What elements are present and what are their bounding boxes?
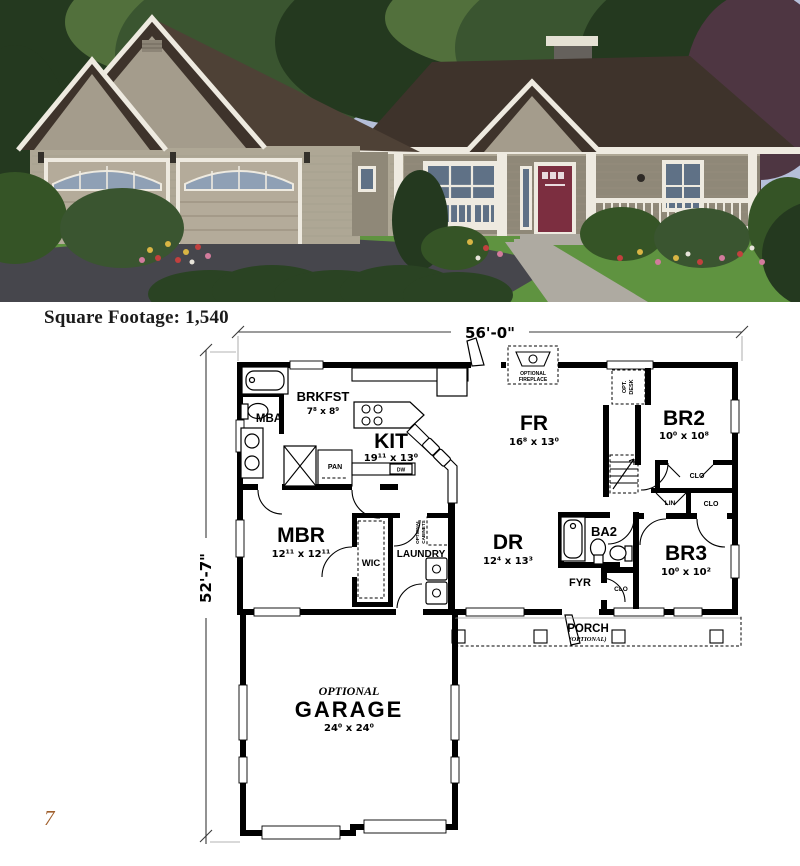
ba2-sink: [591, 539, 606, 557]
room-label-dr: DR: [493, 531, 523, 554]
room-label-mbr: MBR: [277, 524, 325, 547]
room-label-kit: KIT: [374, 430, 408, 453]
garage-door-plan-right: [364, 820, 446, 833]
label-lin: LIN: [665, 500, 676, 507]
porch-note: (OPTIONAL): [569, 636, 606, 643]
square-footage-caption: Square Footage: 1,540: [44, 307, 229, 329]
garage-optional-label: OPTIONAL: [319, 684, 380, 698]
room-label-fyr: FYR: [569, 577, 591, 589]
room-label-br3: BR3: [665, 542, 707, 565]
room-label-fr: FR: [520, 412, 548, 435]
label-clo-br3: CLO: [704, 501, 719, 508]
opt-desk-niche: OPT. DESK: [612, 370, 645, 404]
room-dims-brkfst: 7⁸ x 8⁹: [307, 407, 340, 417]
br3-door-swing: [640, 519, 666, 545]
room-label-laundry: LAUNDRY: [397, 549, 446, 560]
square-footage-label: Square Footage:: [44, 307, 180, 328]
entry-door: [534, 162, 576, 234]
mba-door-swing: [258, 490, 282, 514]
porch-lamp: [637, 174, 645, 182]
kitchen-island: [354, 402, 424, 428]
square-footage-value: 1,540: [185, 307, 229, 328]
cabinets-label-2: CABINETS: [421, 520, 426, 543]
room-label-ba2: BA2: [591, 524, 617, 539]
kitchen-fixtures: DW: [352, 368, 468, 503]
room-dims-kit: 19¹¹ x 13⁰: [364, 453, 418, 464]
room-label-wic: WIC: [362, 558, 381, 569]
laundry-fixtures: [426, 558, 447, 604]
br2-door-swing: [641, 463, 668, 490]
dim-height-text: 52'-7": [197, 553, 215, 603]
garage-door-right: [176, 158, 302, 244]
refrigerator: [437, 368, 467, 396]
porch-plan: PORCH (OPTIONAL): [452, 615, 741, 646]
label-clo-br2: CLO: [690, 473, 705, 480]
ba2-sink-pedestal: [594, 555, 603, 564]
dw-label: DW: [397, 468, 406, 474]
room-dims-garage: 24⁰ x 24⁰: [324, 723, 374, 734]
page-number: 7: [44, 806, 55, 831]
washer: [426, 558, 447, 580]
room-dims-br2: 10⁰ x 10⁸: [659, 431, 709, 442]
room-labels: MBA BRKFST 7⁸ x 8⁹ KIT 19¹¹ x 13⁰ FR 16⁸…: [256, 389, 719, 734]
catalog-page: 56'-0" 52'-7": [0, 0, 800, 866]
house-rendering: [0, 0, 800, 318]
room-dims-br3: 10⁰ x 10²: [661, 567, 711, 578]
porch-label: PORCH: [567, 623, 609, 635]
room-dims-fr: 16⁸ x 13⁰: [509, 437, 559, 448]
attic-vent: [142, 40, 162, 52]
opt-desk-label-1: OPT.: [622, 380, 628, 393]
room-dims-mbr: 12¹¹ x 12¹¹: [272, 549, 331, 560]
page-canvas: 56'-0" 52'-7": [0, 0, 800, 866]
dimension-height: 52'-7": [197, 344, 240, 844]
dimension-width: 56'-0": [232, 324, 748, 361]
room-dims-dr: 12⁴ x 13³: [483, 556, 533, 567]
mba-toilet-tank: [241, 404, 248, 419]
room-label-br2: BR2: [663, 407, 705, 430]
door-sidelight: [520, 166, 532, 230]
label-clo-hall: CLO: [614, 586, 628, 593]
door-swings: [258, 463, 725, 602]
chimney-cap: [546, 36, 598, 46]
connector-window: [352, 152, 388, 236]
mba-fixtures: [241, 367, 316, 486]
floor-plan: 56'-0" 52'-7": [197, 324, 748, 844]
garage-door-plan-left: [262, 826, 340, 839]
room-label-mba: MBA: [256, 413, 282, 425]
fireplace-label-2: FIREPLACE: [519, 377, 548, 383]
opt-desk-label-2: DESK: [629, 379, 635, 394]
room-label-garage: GARAGE: [295, 697, 404, 722]
laundry-exterior-door-swing: [397, 584, 422, 608]
rear-door-leaf: [467, 338, 484, 366]
optional-fireplace: OPTIONAL FIREPLACE: [506, 346, 558, 384]
attic-stairs: [610, 455, 638, 493]
label-pan: PAN: [328, 464, 342, 471]
dryer: [426, 582, 447, 604]
room-label-brkfst: BRKFST: [297, 389, 350, 404]
ba2-toilet: [610, 546, 626, 560]
